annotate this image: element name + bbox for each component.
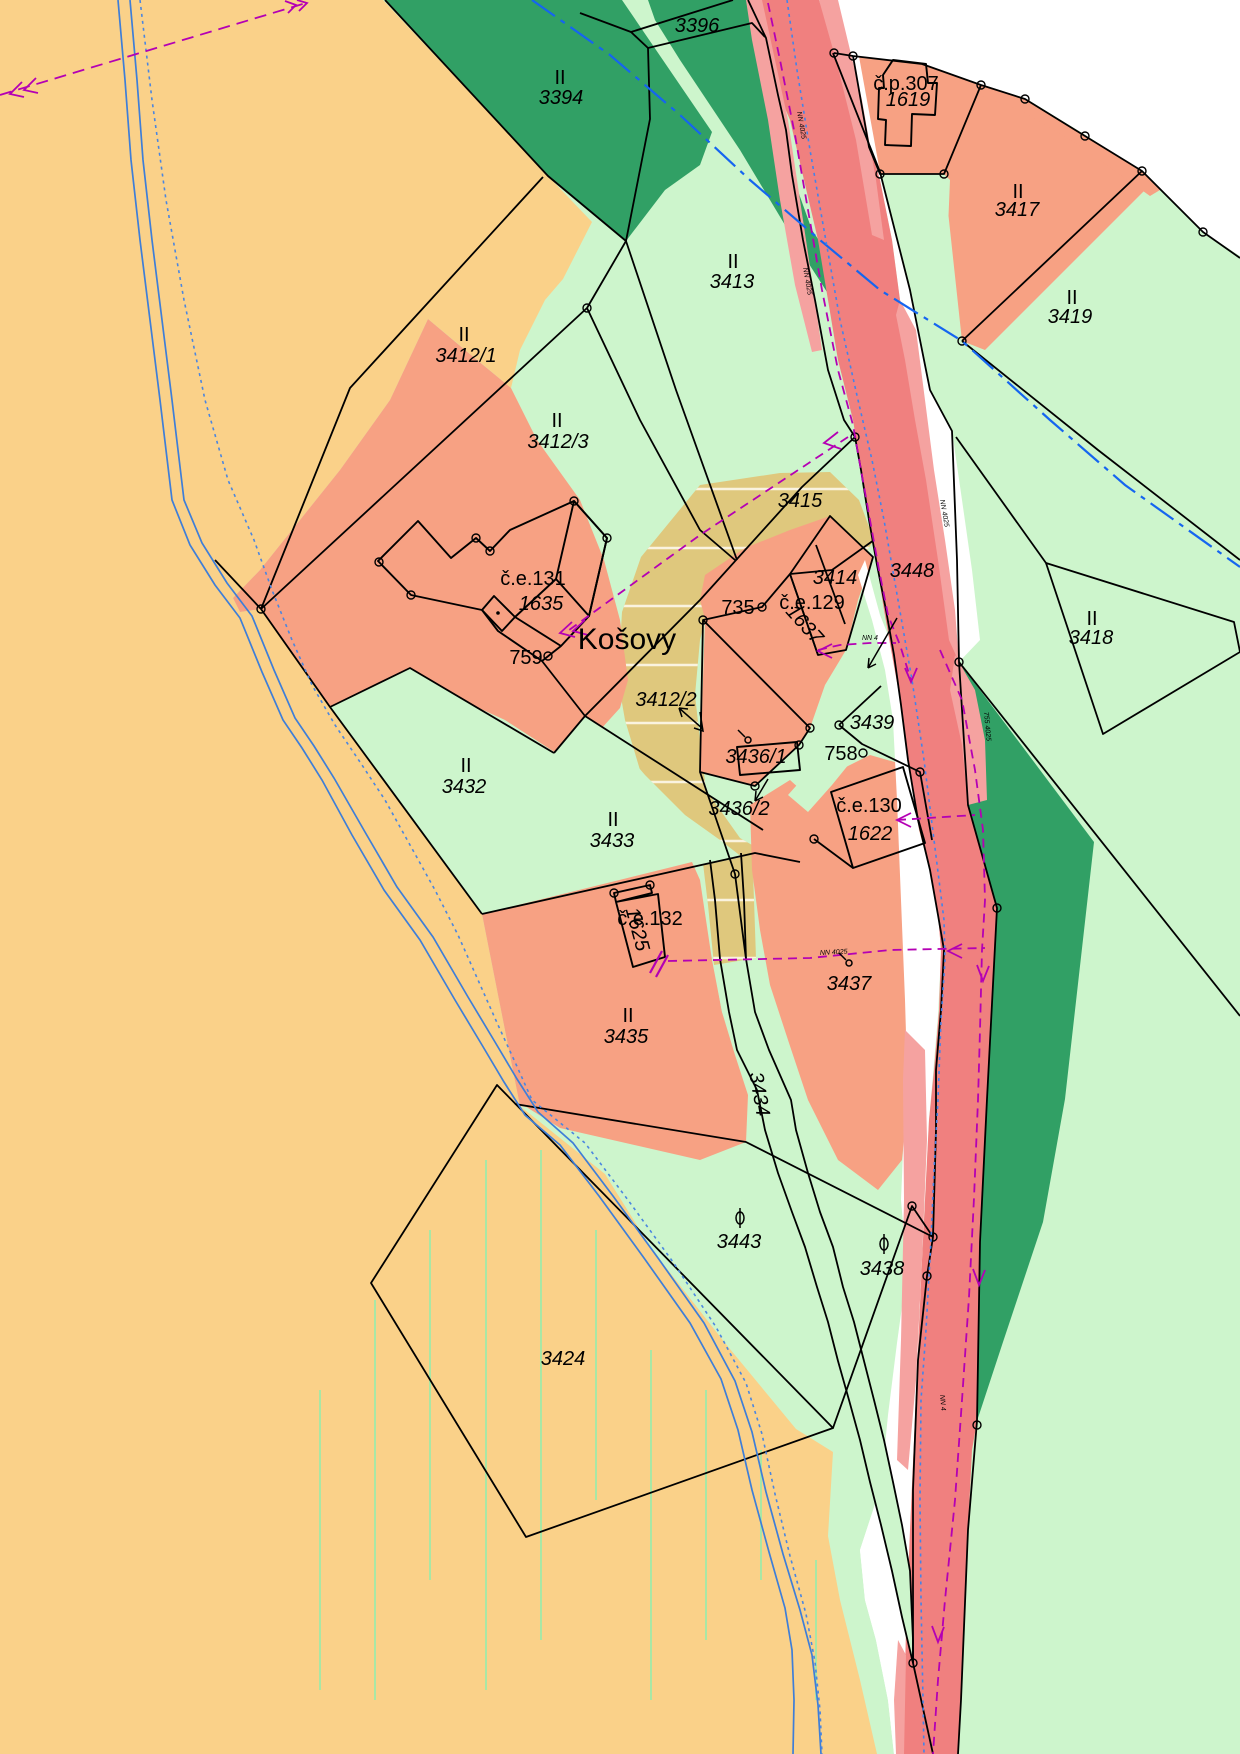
- svg-text:3418: 3418: [1069, 627, 1114, 649]
- svg-text:3436/2: 3436/2: [708, 798, 769, 820]
- svg-text:3413: 3413: [710, 271, 755, 293]
- svg-text:č.e.131: č.e.131: [500, 568, 566, 590]
- svg-text:3439: 3439: [850, 712, 895, 734]
- svg-text:3412/3: 3412/3: [527, 431, 588, 453]
- svg-text:735: 735: [721, 597, 754, 619]
- svg-text:758: 758: [824, 743, 857, 765]
- svg-text:3412/1: 3412/1: [435, 345, 496, 367]
- svg-text:II: II: [458, 324, 469, 346]
- svg-text:II: II: [460, 755, 471, 777]
- svg-text:3443: 3443: [717, 1231, 762, 1253]
- svg-text:II: II: [551, 410, 562, 432]
- svg-text:3424: 3424: [541, 1348, 586, 1370]
- svg-text:3396: 3396: [675, 15, 720, 37]
- svg-text:3437: 3437: [827, 973, 872, 995]
- svg-text:3436/1: 3436/1: [725, 746, 786, 768]
- svg-text:č.e.130: č.e.130: [836, 795, 902, 817]
- svg-text:1619: 1619: [886, 89, 931, 111]
- svg-text:II: II: [554, 67, 565, 89]
- svg-text:3432: 3432: [442, 776, 487, 798]
- svg-text:1622: 1622: [848, 823, 893, 845]
- svg-text:II: II: [607, 809, 618, 831]
- svg-text:NN 4025: NN 4025: [820, 949, 848, 957]
- svg-text:3414: 3414: [813, 567, 858, 589]
- svg-text:II: II: [727, 251, 738, 273]
- svg-text:3438: 3438: [860, 1258, 905, 1280]
- svg-text:3419: 3419: [1048, 306, 1093, 328]
- svg-text:3412/2: 3412/2: [635, 689, 696, 711]
- svg-text:3433: 3433: [590, 830, 635, 852]
- svg-text:3394: 3394: [539, 87, 584, 109]
- svg-text:759: 759: [509, 647, 542, 669]
- svg-text:Košovy: Košovy: [578, 623, 676, 656]
- svg-text:NN 4: NN 4: [938, 1395, 946, 1412]
- svg-text:3448: 3448: [890, 560, 935, 582]
- svg-text:II: II: [622, 1005, 633, 1027]
- svg-text:3415: 3415: [778, 490, 823, 512]
- svg-text:3417: 3417: [995, 199, 1040, 221]
- svg-text:1635: 1635: [519, 593, 564, 615]
- svg-text:NN 4: NN 4: [862, 635, 878, 642]
- svg-text:3435: 3435: [604, 1026, 649, 1048]
